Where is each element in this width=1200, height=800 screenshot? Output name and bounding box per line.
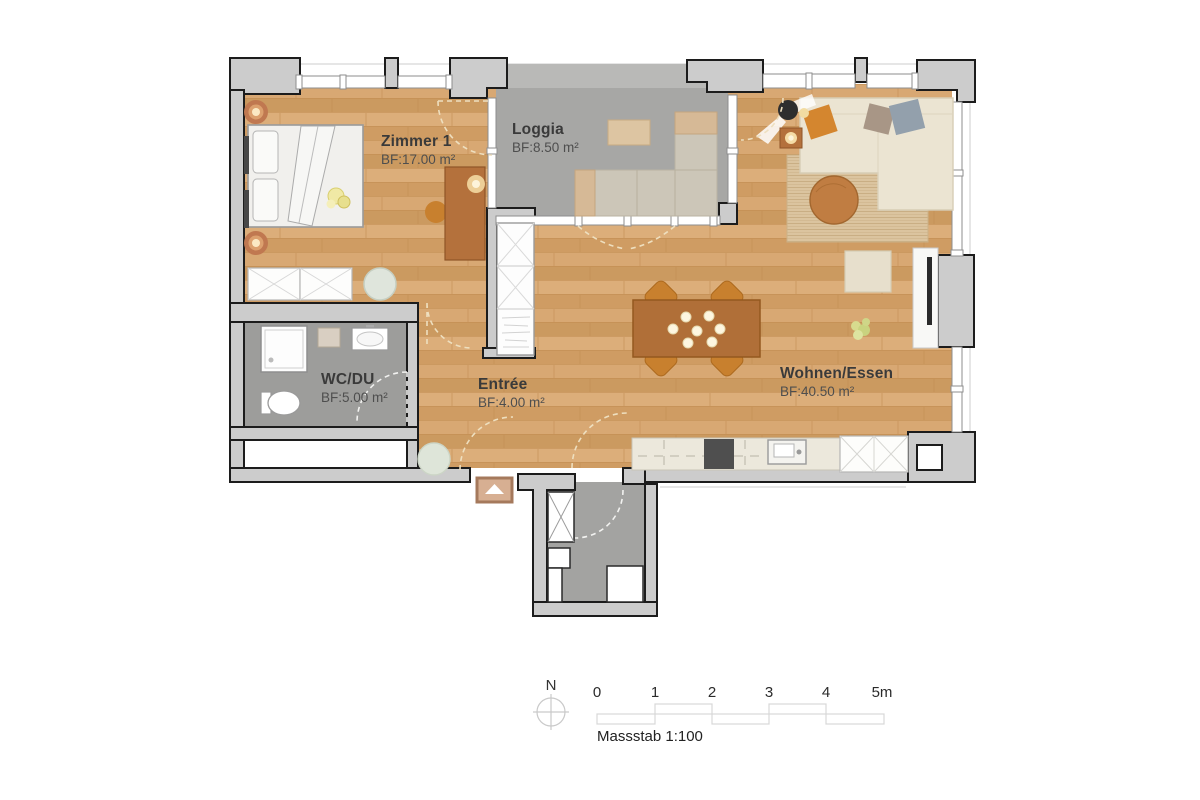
bedside-lamp-top: [244, 100, 268, 124]
bath-cabinet: [318, 328, 340, 347]
wall-wc-right: [407, 322, 418, 468]
kitchen: [632, 436, 908, 472]
wall-top-small-2: [855, 58, 867, 82]
room-label-zimmer1: Zimmer 1: [381, 133, 452, 150]
scale-tick-1: 1: [651, 684, 659, 701]
headboard-segment-2: [244, 190, 249, 228]
room-label-wc-du: WC/DU: [321, 371, 375, 388]
loggia-cushion-top: [675, 112, 717, 134]
loggia-table: [608, 120, 650, 145]
wall-loggia-corner-stub: [719, 203, 737, 224]
stove: [704, 439, 734, 469]
room-label-wohnen-essen: Wohnen/Essen: [780, 365, 893, 382]
wall-wc-bottom: [230, 427, 418, 440]
wall-stair-bottom: [533, 602, 657, 616]
window-bedroom-2: [398, 76, 450, 88]
entrance-marker: [477, 478, 512, 502]
floor-plan-drawing: Zimmer 1 BF:17.00 m² Loggia BF:8.50 m² W…: [0, 0, 1200, 800]
wall-wc-top: [230, 303, 418, 322]
bedside-lamp-bottom: [244, 231, 268, 255]
scale-caption: Massstab 1:100: [597, 728, 703, 745]
wardrobe: [497, 223, 534, 355]
courtyard: [243, 440, 407, 468]
scale-tick-3: 3: [765, 684, 773, 701]
shaft-window-box: [917, 445, 942, 470]
toilet: [261, 391, 300, 415]
bed-pillow-top: [253, 131, 278, 173]
shower: [261, 326, 307, 372]
loggia-sofa-horizontal: [575, 170, 717, 216]
headboard-segment-1: [244, 136, 249, 174]
stair-duct: [607, 566, 643, 602]
tv: [927, 257, 932, 325]
north-label: N: [546, 677, 557, 694]
scale-bar: 0 1 2 3 4 5m Massstab 1:100: [593, 684, 893, 745]
desk-lamp: [467, 175, 485, 193]
wall-right-pillar: [938, 255, 974, 347]
room-area-loggia: BF:8.50 m²: [512, 140, 579, 155]
north-arrow: N: [533, 677, 569, 730]
room-area-zimmer1: BF:17.00 m²: [381, 152, 456, 167]
stair-landing-1: [548, 548, 570, 568]
scale-tick-5: 5m: [872, 684, 893, 701]
wall-stair-right: [645, 484, 657, 602]
bed-pillow-bottom: [253, 179, 278, 221]
window-living-2: [867, 74, 917, 88]
scale-tick-2: 2: [708, 684, 716, 701]
scale-tick-4: 4: [822, 684, 830, 701]
wall-left: [230, 90, 244, 472]
room-area-entree: BF:4.00 m²: [478, 395, 545, 410]
room-area-wc-du: BF:5.00 m²: [321, 390, 388, 405]
side-table: [780, 128, 802, 148]
wall-top-left-corner: [230, 58, 300, 94]
loggia-cushion-left: [575, 170, 595, 216]
kitchen-counter: [632, 438, 840, 470]
coffee-table: [810, 176, 858, 224]
pouf: [845, 251, 891, 292]
wall-top-small-1: [385, 58, 398, 88]
room-label-entree: Entrée: [478, 376, 528, 393]
scale-bar-segments: [597, 704, 884, 724]
room-label-loggia: Loggia: [512, 121, 564, 138]
stair-landing-2: [548, 568, 562, 602]
room-area-wohnen-essen: BF:40.50 m²: [780, 384, 855, 399]
washbasin: [352, 325, 388, 350]
scale-tick-0: 0: [593, 684, 601, 701]
desk-chair: [425, 201, 447, 223]
floor-plan-page: Zimmer 1 BF:17.00 m² Loggia BF:8.50 m² W…: [0, 0, 1200, 800]
kitchen-sink: [768, 440, 806, 464]
entree-plant-stool: [418, 443, 450, 475]
bedroom-stool: [364, 268, 396, 300]
sideboard: [913, 248, 938, 348]
